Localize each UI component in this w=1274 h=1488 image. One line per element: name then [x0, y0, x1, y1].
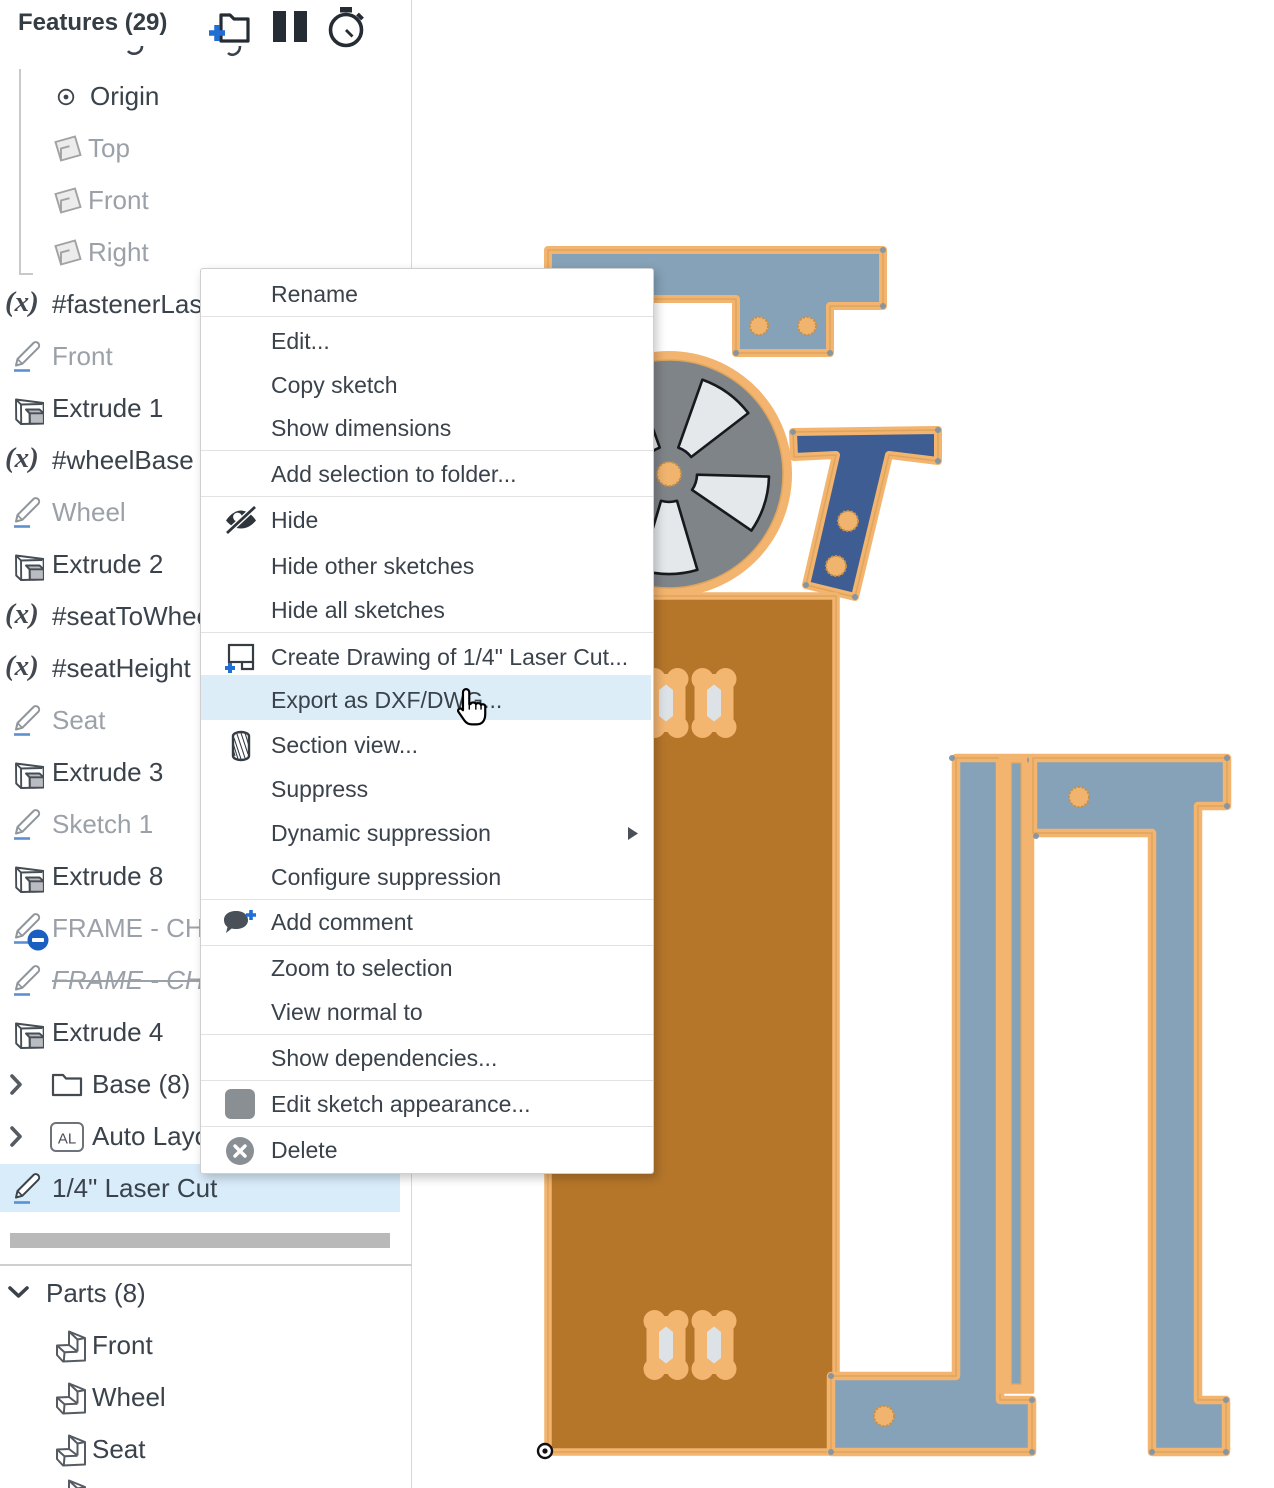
- svg-text:AL: AL: [58, 1131, 76, 1148]
